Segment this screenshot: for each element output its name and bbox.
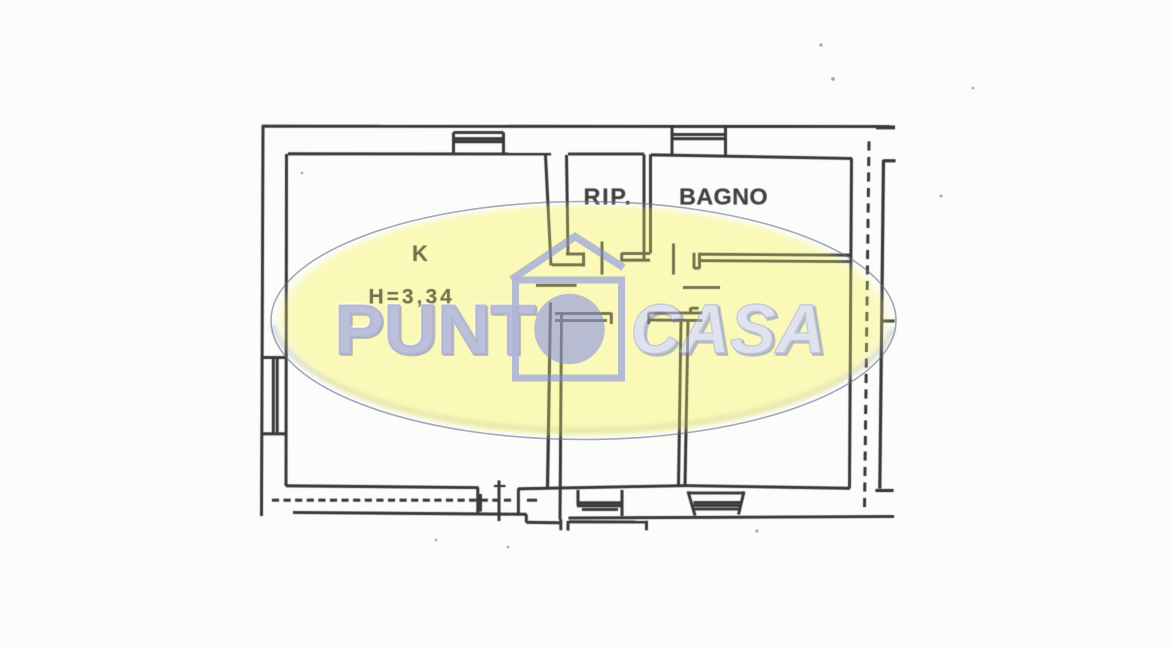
svg-text:CASA: CASA — [631, 290, 826, 368]
